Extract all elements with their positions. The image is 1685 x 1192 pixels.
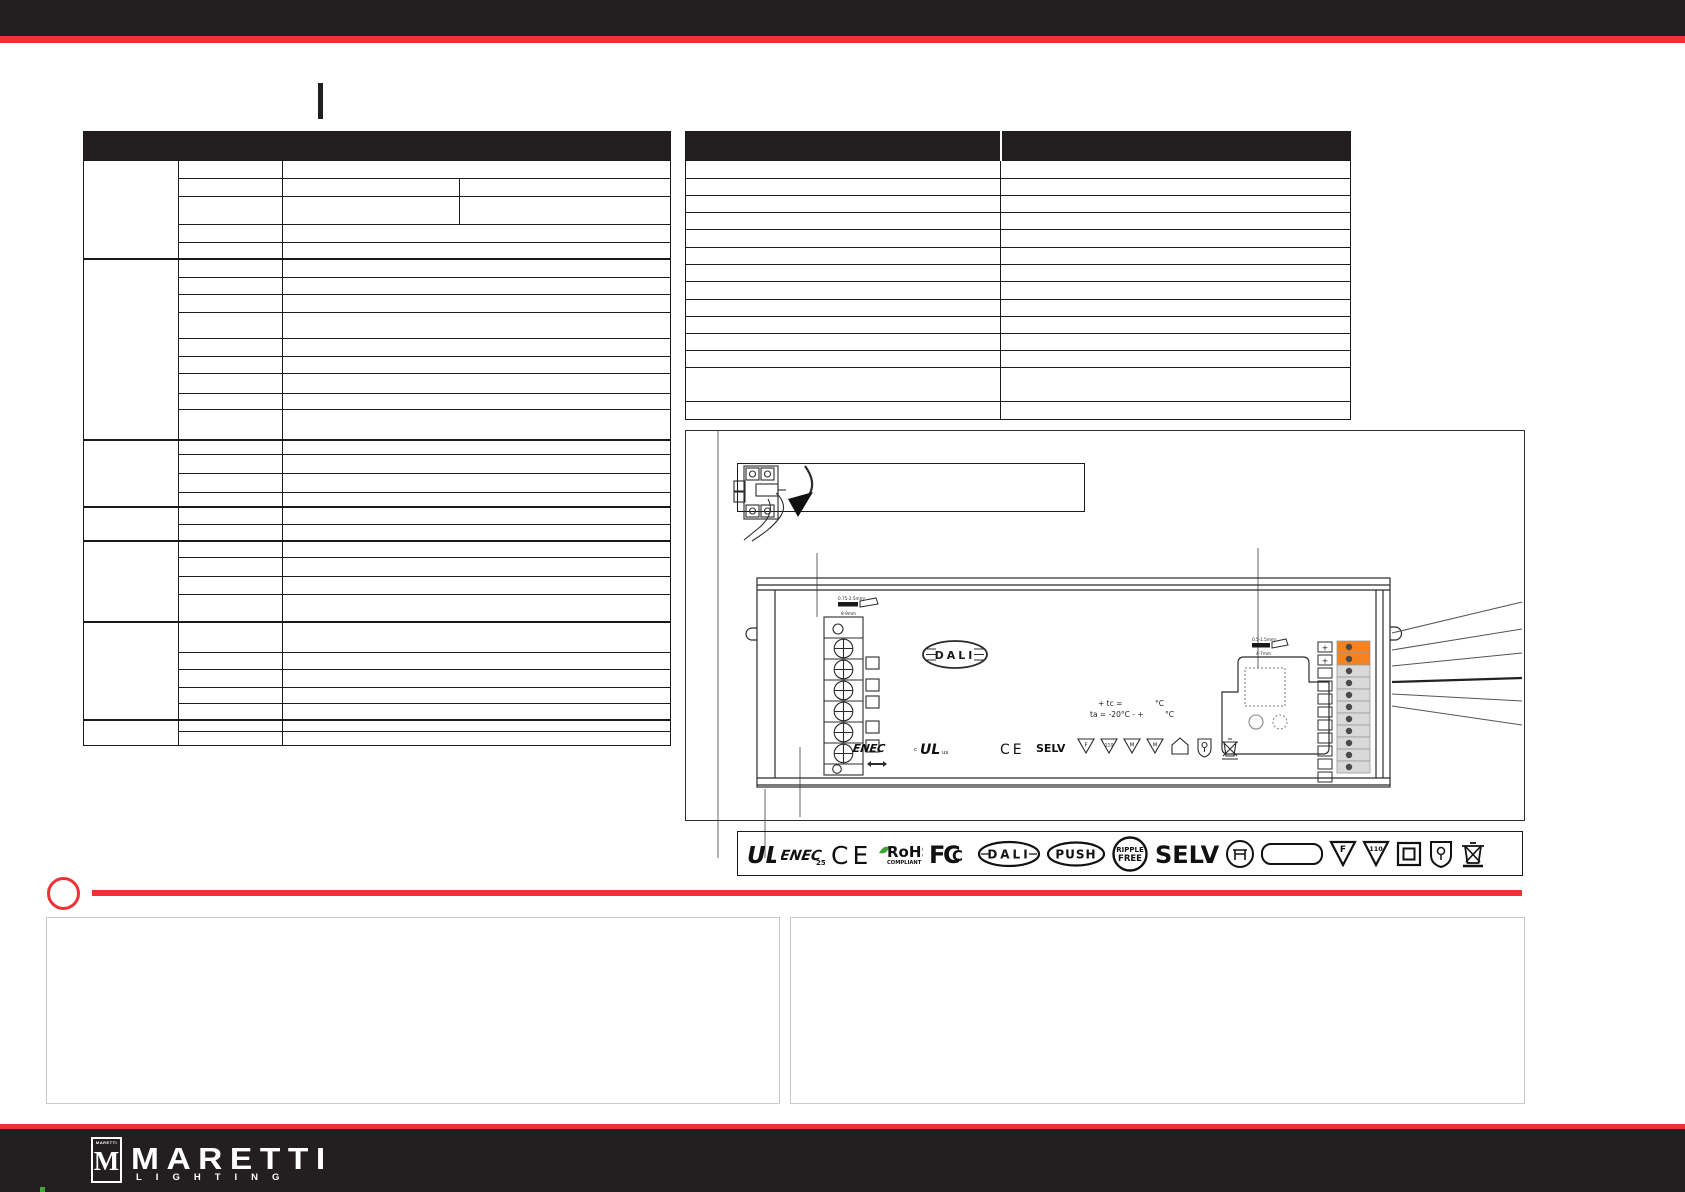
fcc-c-inner: C — [952, 847, 963, 865]
table-cell — [686, 161, 1001, 179]
dali-logo-device: DALI — [923, 641, 987, 668]
table-cell — [686, 334, 1001, 351]
selv-logo-text: SELV — [1155, 841, 1220, 868]
label-recess — [1222, 657, 1329, 754]
table-cell — [179, 704, 283, 720]
plus-label-2: + — [1322, 657, 1329, 666]
tr-shape — [686, 265, 1351, 282]
table-cell — [179, 622, 283, 653]
table-cell — [179, 357, 283, 374]
title-divider-bar — [318, 83, 323, 119]
furniture-circle-icon — [1225, 839, 1255, 869]
rect-shape — [1252, 643, 1270, 648]
table-cell — [1001, 265, 1351, 282]
table-cell — [84, 259, 179, 440]
rect-shape — [757, 578, 1390, 787]
path-shape — [1462, 843, 1484, 863]
table-cell — [283, 493, 671, 507]
ripple-text: RIPPLE — [1116, 846, 1144, 854]
ul-mark-device: UL — [920, 742, 940, 758]
circle-shape — [1346, 716, 1352, 722]
table-cell — [686, 368, 1001, 402]
tr-shape — [686, 248, 1351, 265]
tr-shape — [84, 132, 671, 161]
table-cell — [1001, 196, 1351, 213]
table-cell — [84, 161, 179, 259]
rect-shape — [734, 492, 745, 502]
driver-body-outline — [746, 578, 1402, 787]
triangle-f-icon: F — [1329, 840, 1357, 867]
rect-shape — [1318, 772, 1332, 782]
tr-shape — [84, 440, 671, 455]
circle-shape — [1346, 752, 1352, 758]
dali-logo: DALI — [977, 840, 1041, 868]
adjust-dial-1 — [1249, 715, 1263, 729]
rect-shape — [1337, 665, 1370, 677]
tr-shape — [84, 259, 671, 278]
table-cell — [84, 507, 179, 541]
ta-unit: °C — [1165, 710, 1174, 719]
circle-shape — [1346, 656, 1352, 662]
table-cell — [1001, 230, 1351, 248]
table-cell — [179, 455, 283, 474]
table-cell — [686, 248, 1001, 265]
weee-bin-icon — [1459, 839, 1487, 869]
class2-icon — [1395, 840, 1423, 868]
table-cell — [283, 670, 671, 688]
rect-shape — [1398, 843, 1420, 865]
tr-shape — [686, 351, 1351, 368]
circle-shape — [1346, 692, 1352, 698]
dali-logo-text: DALI — [935, 649, 976, 662]
table-cell — [283, 410, 671, 440]
device-cert-marks: c UL us ENEC CE SELV F 110 M M — [852, 738, 1238, 759]
table-cell — [686, 317, 1001, 334]
table-cell — [179, 394, 283, 410]
table-cell — [283, 394, 671, 410]
press-arrow — [805, 466, 812, 495]
rect-shape — [866, 679, 879, 691]
tr-shape — [686, 230, 1351, 248]
label-area — [1245, 668, 1285, 706]
rect-shape — [1404, 848, 1415, 859]
push-terminal-strip — [1337, 641, 1370, 773]
free-text: FREE — [1118, 854, 1142, 864]
table-cell — [179, 595, 283, 622]
rect-shape — [1262, 844, 1322, 864]
table-cell — [686, 213, 1001, 230]
right-mounting-slot — [1390, 627, 1402, 640]
wire-strip-icon-right: 0.5-1.5mm² 4-7mm — [1252, 637, 1288, 656]
table-cell — [283, 653, 671, 670]
table-cell — [1001, 402, 1351, 420]
table-cell — [179, 259, 283, 278]
selv-logo: SELV — [1154, 840, 1220, 868]
table-cell — [179, 688, 283, 704]
rect-shape — [734, 481, 745, 491]
circle-shape — [750, 508, 756, 514]
right-table-header-col2 — [1001, 132, 1351, 161]
path-shape — [1392, 602, 1522, 633]
table-cell — [283, 622, 671, 653]
tr-shape — [84, 507, 671, 525]
table-cell — [179, 474, 283, 493]
table-cell — [686, 179, 1001, 196]
brand-tagline: LIGHTING — [136, 1172, 293, 1183]
tbody-shape — [686, 132, 1351, 420]
circle-shape — [750, 471, 756, 477]
table-cell — [179, 243, 283, 259]
ce-logo-text: CE — [831, 841, 870, 868]
table-cell — [1001, 179, 1351, 196]
table-cell — [84, 440, 179, 507]
table-cell — [283, 278, 671, 295]
table-cell — [283, 357, 671, 374]
table-cell — [1001, 317, 1351, 334]
table-cell — [283, 720, 671, 732]
tc-unit: °C — [1155, 699, 1164, 708]
table-cell — [1001, 248, 1351, 265]
table-cell — [179, 577, 283, 595]
table-cell — [179, 440, 283, 455]
table-cell — [686, 351, 1001, 368]
table-cell — [179, 295, 283, 313]
mounting-hole-bottom — [833, 765, 842, 774]
tr-shape — [686, 132, 1351, 161]
tr-shape — [686, 213, 1351, 230]
circle-shape — [1346, 764, 1352, 770]
tr-shape — [84, 622, 671, 653]
triangle-f-text: F — [1340, 845, 1346, 855]
polygon-shape — [788, 492, 813, 517]
table-cell — [283, 688, 671, 704]
table-cell — [283, 455, 671, 474]
rect-shape — [1337, 749, 1370, 761]
circle-shape — [1346, 728, 1352, 734]
top-red-strip — [0, 36, 1685, 43]
leader-lines — [718, 431, 1258, 858]
ul-c-mark: c — [914, 747, 917, 753]
circle-shape — [1346, 644, 1352, 650]
table-cell — [179, 374, 283, 394]
table-cell — [84, 541, 179, 622]
table-cell — [283, 474, 671, 493]
table-cell — [179, 507, 283, 525]
push-logo: PUSH — [1046, 841, 1106, 867]
table-cell — [283, 595, 671, 622]
table-cell — [179, 493, 283, 507]
table-cell — [179, 558, 283, 577]
table-cell — [283, 541, 671, 558]
table-cell — [283, 179, 460, 197]
table-cell — [179, 339, 283, 357]
wire-entry-ports — [866, 657, 879, 752]
table-cell — [283, 558, 671, 577]
rect-shape — [866, 657, 879, 669]
fcc-logo: F C C — [928, 840, 972, 868]
red-divider-line — [92, 890, 1522, 896]
path-shape — [1233, 850, 1247, 860]
blank-badge — [1260, 841, 1324, 867]
rect-shape — [1337, 725, 1370, 737]
left-spec-table — [83, 131, 671, 746]
strain-relief-arrow — [867, 761, 887, 767]
ul-logo-text: UL — [747, 843, 776, 869]
table-cell — [179, 653, 283, 670]
table-cell — [283, 339, 671, 357]
table-cell — [686, 402, 1001, 420]
tc-temperature-text: + tc = °C ta = -20°C - + °C — [1090, 699, 1174, 719]
rect-shape — [1318, 720, 1332, 730]
table-cell — [179, 670, 283, 688]
rect-shape — [761, 505, 774, 517]
rect-shape — [1318, 759, 1332, 769]
table-cell — [283, 259, 671, 278]
triangle-110-label: 110 — [1105, 743, 1114, 749]
rohs-text: RoHS — [887, 843, 923, 861]
path-shape — [1392, 694, 1522, 701]
rect-shape — [1337, 737, 1370, 749]
emblem-m-letter: M — [93, 1145, 120, 1177]
table-cell — [686, 282, 1001, 300]
table-cell — [283, 704, 671, 720]
rect-shape — [1318, 668, 1332, 678]
tr-shape — [84, 541, 671, 558]
certification-logos-strip: UL ENEC 25 CE RoHS COMPLIANT F C C DALI … — [737, 831, 1523, 876]
push-terminal-illustration — [734, 466, 813, 541]
tr-shape — [686, 282, 1351, 300]
table-cell — [283, 507, 671, 525]
circle-shape — [765, 471, 771, 477]
rect-shape — [761, 468, 774, 480]
rect-shape — [1318, 707, 1332, 717]
rect-shape — [746, 468, 759, 480]
rect-shape — [746, 505, 759, 517]
table-cell — [179, 732, 283, 746]
table-cell — [283, 525, 671, 541]
table-cell — [686, 196, 1001, 213]
triangle-110-icon: 110 — [1362, 840, 1390, 867]
circle-shape — [1346, 704, 1352, 710]
triangle-110-text: 110 — [1369, 845, 1383, 853]
table-cell — [1001, 213, 1351, 230]
ce-mark-device: CE — [1000, 742, 1025, 758]
table-cell — [179, 197, 283, 225]
table-cell — [179, 278, 283, 295]
table-cell — [179, 225, 283, 243]
g-shape — [1078, 738, 1238, 759]
triangle-f-label: F — [1084, 743, 1087, 749]
table-cell — [84, 622, 179, 720]
left-table-header — [84, 132, 671, 161]
datasheet-page: 0.75-2.5mm² 8-9mm DALI + tc = °C ta = -2… — [0, 0, 1685, 1192]
table-cell — [283, 374, 671, 394]
right-spec-table — [685, 131, 1351, 420]
plus-label-1: + — [1322, 644, 1329, 653]
table-cell — [1001, 334, 1351, 351]
table-cell — [1001, 161, 1351, 179]
page-corner-mark — [40, 1187, 45, 1192]
bottom-note-box-left — [46, 917, 780, 1104]
enec-logo: ENEC 25 — [781, 840, 825, 868]
rect-shape — [756, 484, 778, 496]
rect-shape — [1337, 701, 1370, 713]
path-shape — [1392, 706, 1522, 725]
circle-shape — [1202, 743, 1207, 748]
path-shape — [1222, 657, 1329, 754]
bottom-note-box-right — [790, 917, 1525, 1104]
enec-mark-device: ENEC — [852, 742, 886, 755]
tr-shape — [686, 300, 1351, 317]
section-number-circle — [47, 877, 80, 910]
path-shape — [1392, 653, 1522, 666]
table-cell — [686, 265, 1001, 282]
rect-shape — [866, 721, 879, 733]
rect-shape — [1318, 694, 1332, 704]
table-cell — [1001, 300, 1351, 317]
rect-shape — [1337, 713, 1370, 725]
table-cell — [283, 243, 671, 259]
top-black-bar — [0, 0, 1685, 36]
table-cell — [179, 410, 283, 440]
triangle-m2-label: M — [1153, 743, 1158, 749]
rohs-compliant-text: COMPLIANT — [887, 860, 922, 866]
table-cell — [179, 179, 283, 197]
table-cell — [283, 440, 671, 455]
ul-logo: UL — [746, 839, 776, 869]
terminal-cell-orange — [1337, 641, 1370, 653]
path-shape — [1466, 847, 1480, 862]
table-cell — [460, 179, 671, 197]
rect-shape — [1337, 677, 1370, 689]
path-shape — [1392, 629, 1522, 650]
table-cell — [179, 525, 283, 541]
wire-strip-icon-left: 0.75-2.5mm² 8-9mm — [838, 596, 878, 616]
house-icon — [1172, 738, 1188, 754]
table-cell — [283, 732, 671, 746]
push-logo-text: PUSH — [1055, 847, 1096, 861]
table-cell — [460, 197, 671, 225]
tr-shape — [686, 402, 1351, 420]
rohs-logo: RoHS COMPLIANT — [875, 839, 923, 869]
ta-label: ta = -20°C - + — [1090, 710, 1144, 719]
ripple-free-logo: RIPPLE FREE — [1111, 835, 1149, 873]
strip-left-length-label: 8-9mm — [841, 611, 856, 616]
tr-shape — [686, 317, 1351, 334]
maretti-emblem: MARETTI M — [91, 1137, 122, 1183]
dali-logo-strip-text: DALI — [987, 847, 1030, 861]
driver-technical-drawing: 0.75-2.5mm² 8-9mm DALI + tc = °C ta = -2… — [685, 430, 1525, 890]
ul-us-mark: us — [942, 750, 948, 756]
triangle-m1-label: M — [1130, 743, 1135, 749]
ce-logo: CE — [830, 840, 870, 868]
table-cell — [1001, 351, 1351, 368]
path-shape — [1392, 678, 1522, 682]
rect-shape — [1337, 689, 1370, 701]
selv-mark-device: SELV — [1036, 742, 1066, 755]
circle-shape — [1346, 740, 1352, 746]
table-cell — [179, 720, 283, 732]
rect-shape — [838, 602, 858, 607]
shield-lamp-icon — [1428, 839, 1454, 869]
table-cell — [283, 225, 671, 243]
tr-shape — [686, 161, 1351, 179]
adjust-dial-2 — [1273, 715, 1287, 729]
tbody-shape — [84, 132, 671, 746]
right-table-header-col1 — [686, 132, 1001, 161]
tr-shape — [686, 179, 1351, 196]
table-cell — [686, 300, 1001, 317]
tr-shape — [686, 368, 1351, 402]
left-mounting-slot — [746, 628, 757, 640]
enec-number: 25 — [816, 859, 825, 867]
mounting-hole-top — [833, 624, 843, 634]
tr-shape — [84, 720, 671, 732]
table-cell — [283, 577, 671, 595]
rect-shape — [866, 696, 879, 708]
right-callout-leaders — [1392, 602, 1522, 725]
table-cell — [179, 161, 283, 179]
table-cell — [283, 295, 671, 313]
table-cell — [283, 313, 671, 339]
table-cell — [283, 197, 460, 225]
table-cell — [1001, 282, 1351, 300]
tr-shape — [686, 334, 1351, 351]
tr-shape — [686, 196, 1351, 213]
rect-shape — [1337, 761, 1370, 773]
table-cell — [1001, 368, 1351, 402]
rect-shape — [1318, 733, 1332, 743]
table-cell — [283, 161, 671, 179]
terminal-cell-orange — [1337, 653, 1370, 665]
tr-shape — [84, 161, 671, 179]
circle-shape — [1346, 668, 1352, 674]
table-cell — [84, 720, 179, 746]
table-cell — [179, 541, 283, 558]
tc-label: + tc = — [1098, 699, 1122, 708]
circle-shape — [1346, 680, 1352, 686]
strip-right-length-label: 4-7mm — [1256, 651, 1271, 656]
table-cell — [179, 313, 283, 339]
circle-shape — [1438, 847, 1445, 854]
table-cell — [686, 230, 1001, 248]
